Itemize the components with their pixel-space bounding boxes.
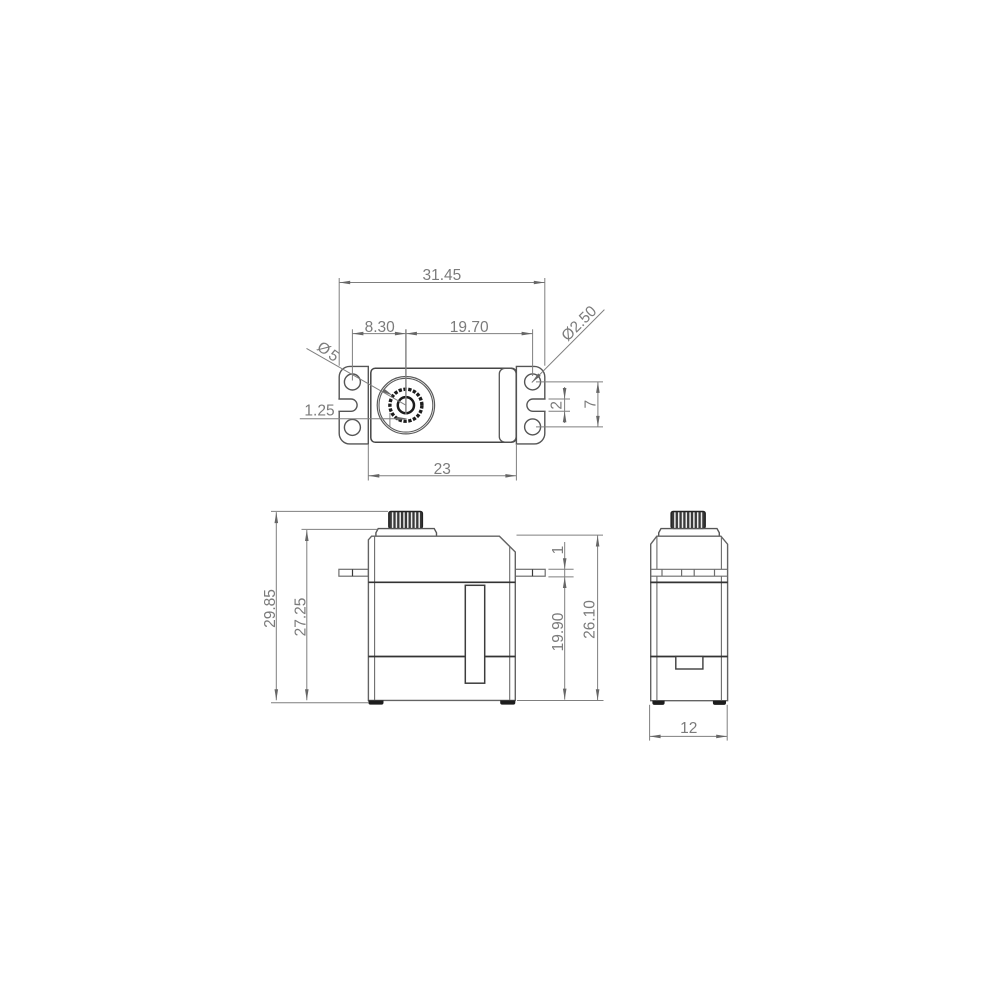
svg-text:12: 12 [680, 720, 697, 737]
svg-text:19.90: 19.90 [550, 612, 567, 651]
svg-text:7: 7 [583, 400, 600, 409]
svg-text:31.45: 31.45 [423, 267, 462, 284]
svg-text:29.85: 29.85 [262, 589, 279, 628]
svg-text:1.25: 1.25 [304, 403, 334, 420]
svg-text:19.70: 19.70 [450, 319, 489, 336]
svg-text:27.25: 27.25 [293, 598, 310, 637]
svg-text:8.30: 8.30 [365, 319, 396, 336]
svg-text:1: 1 [550, 546, 567, 555]
svg-text:2: 2 [548, 401, 565, 410]
svg-text:26.10: 26.10 [582, 600, 599, 639]
svg-text:23: 23 [434, 461, 451, 478]
